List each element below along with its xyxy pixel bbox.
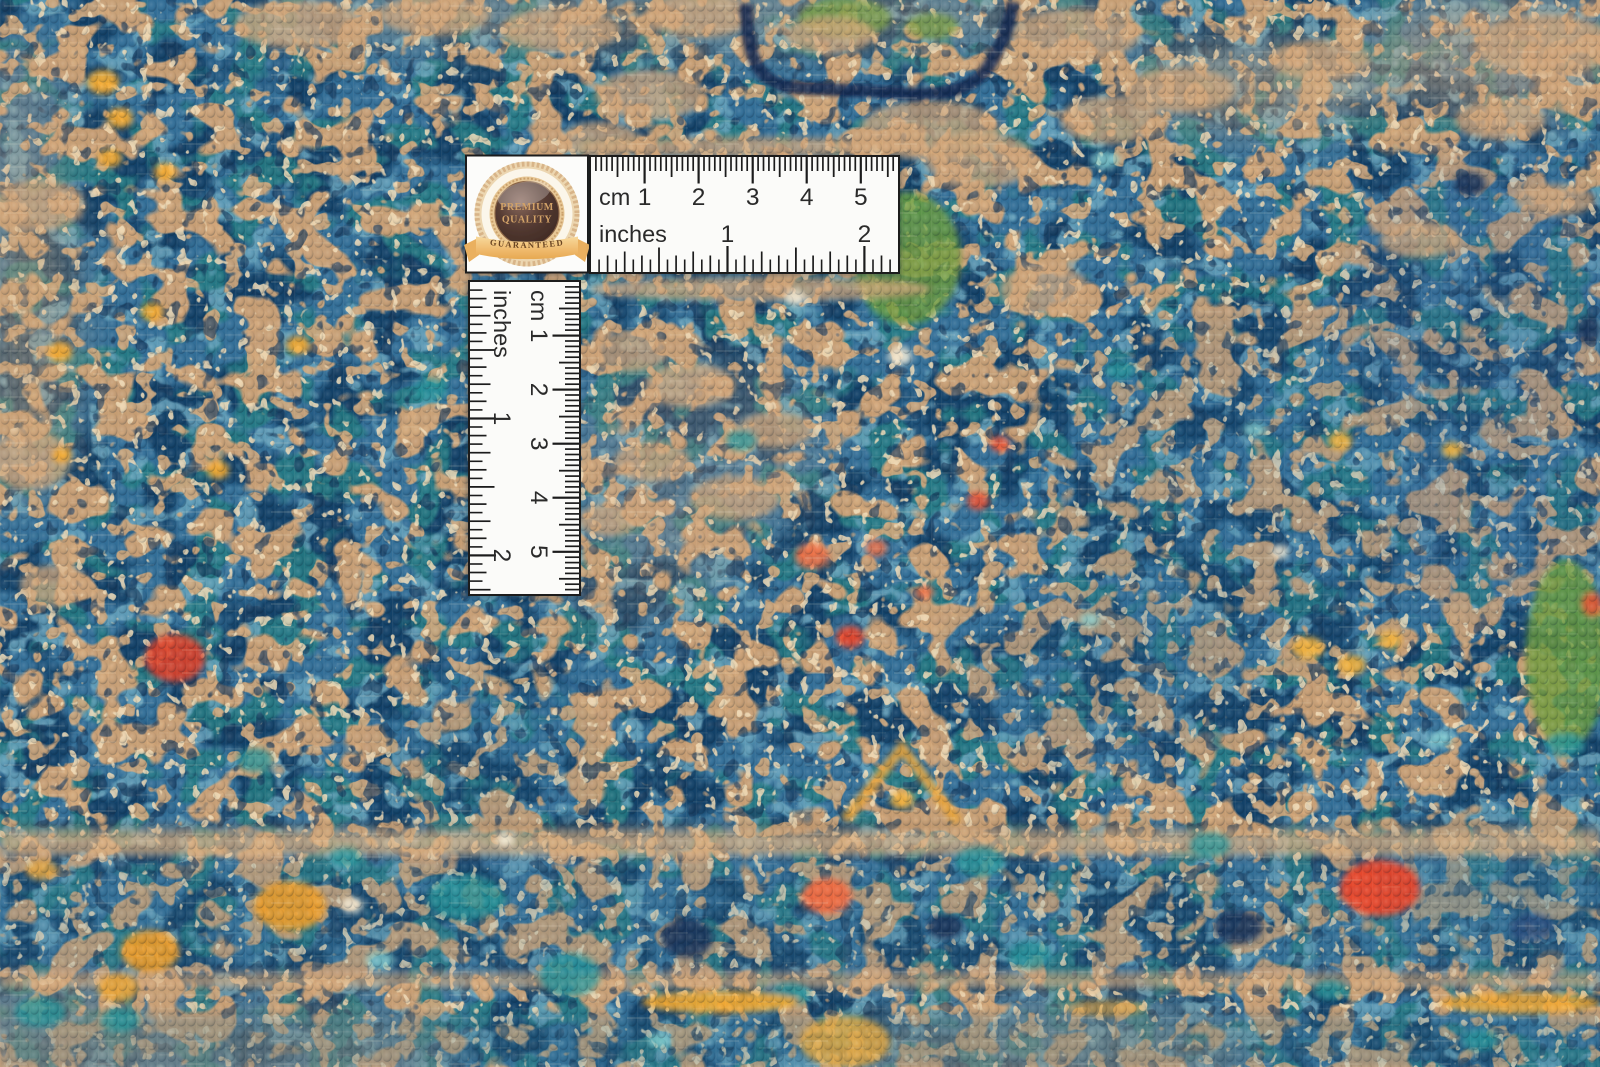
svg-text:2: 2: [525, 383, 552, 397]
svg-text:3: 3: [746, 184, 760, 211]
svg-text:4: 4: [525, 491, 552, 505]
svg-text:inches: inches: [489, 290, 515, 358]
svg-text:5: 5: [525, 545, 552, 559]
svg-text:cm: cm: [526, 290, 552, 321]
svg-text:2: 2: [692, 184, 706, 211]
svg-text:2: 2: [488, 549, 515, 563]
svg-text:inches: inches: [599, 221, 667, 247]
svg-text:4: 4: [800, 184, 814, 211]
svg-text:1: 1: [721, 221, 735, 248]
svg-text:3: 3: [525, 437, 552, 451]
svg-text:1: 1: [488, 412, 515, 426]
svg-text:5: 5: [854, 184, 868, 211]
svg-text:QUALITY: QUALITY: [502, 215, 552, 226]
svg-text:1: 1: [638, 184, 652, 211]
svg-text:1: 1: [525, 329, 552, 343]
svg-text:PREMIUM: PREMIUM: [500, 202, 554, 213]
svg-text:cm: cm: [599, 184, 630, 210]
svg-text:2: 2: [858, 221, 872, 248]
